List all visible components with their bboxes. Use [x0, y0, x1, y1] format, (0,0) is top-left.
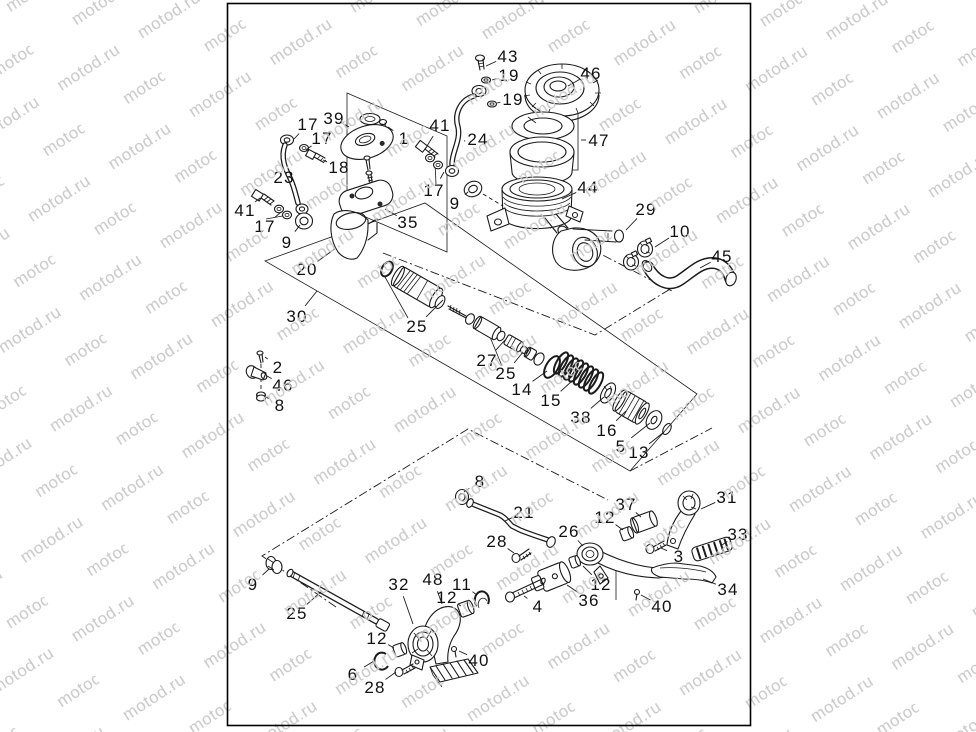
exploded-parts-diagram: motod.ru motod.ru	[0, 0, 976, 732]
watermark-overlay	[0, 0, 976, 732]
parts-diagram-page: motod.ru motod.ru	[0, 0, 976, 732]
